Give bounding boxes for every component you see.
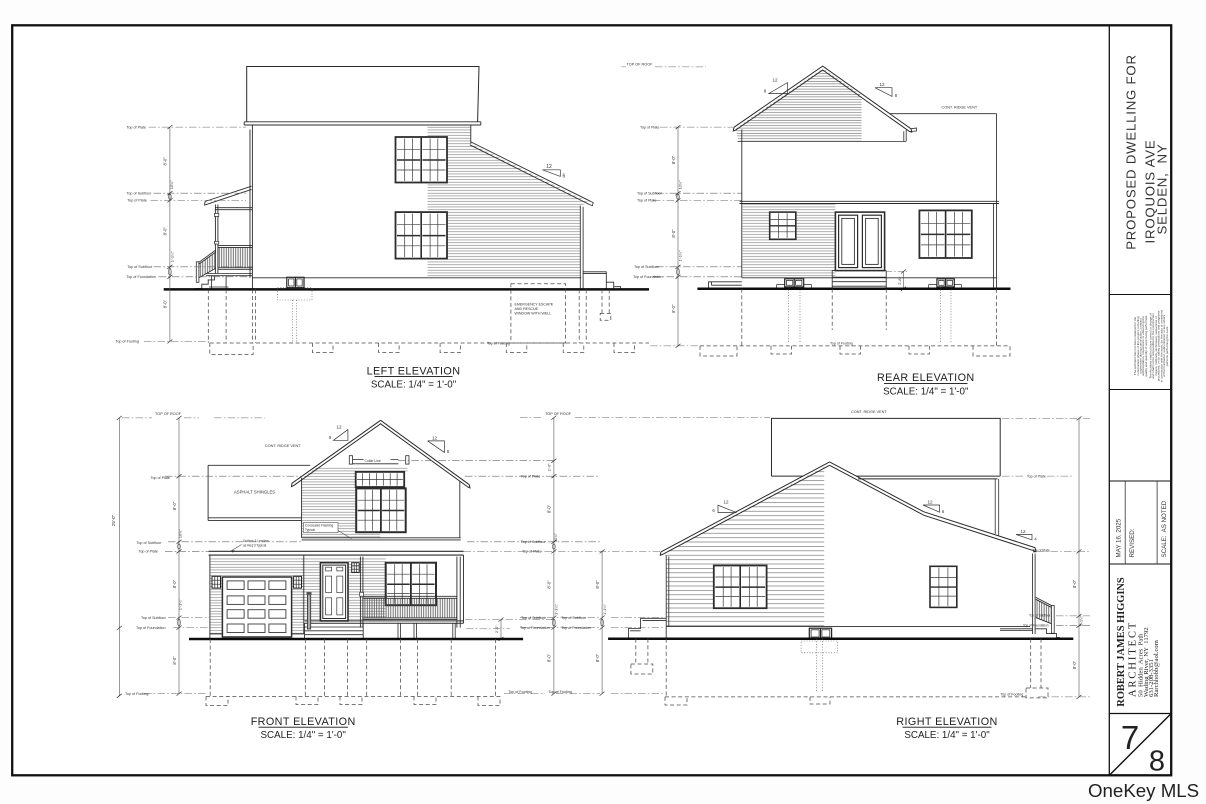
svg-text:8'-0": 8'-0" xyxy=(546,580,551,589)
svg-text:SELDEN, NY: SELDEN, NY xyxy=(1155,144,1170,235)
svg-text:REVISED:: REVISED: xyxy=(1129,528,1136,557)
svg-text:Top of Foundation: Top of Foundation xyxy=(1023,624,1049,628)
svg-text:7: 7 xyxy=(1121,719,1139,756)
svg-text:Top of Subfloor: Top of Subfloor xyxy=(634,265,660,269)
svg-text:1'-1¼": 1'-1¼" xyxy=(602,603,607,615)
svg-text:8'-0": 8'-0" xyxy=(172,656,177,665)
svg-text:8'-0": 8'-0" xyxy=(1072,579,1077,588)
svg-text:8'-0": 8'-0" xyxy=(546,653,551,662)
svg-text:8'-0": 8'-0" xyxy=(595,653,600,662)
svg-text:Top of Foundation: Top of Foundation xyxy=(136,626,166,630)
svg-text:Top of Plate: Top of Plate xyxy=(151,476,170,480)
svg-text:SCALE: AS NOTED: SCALE: AS NOTED xyxy=(1161,500,1168,557)
svg-text:8: 8 xyxy=(1149,746,1165,778)
svg-text:25'-0": 25'-0" xyxy=(111,514,116,526)
svg-text:CONT. RIDGE VENT: CONT. RIDGE VENT xyxy=(851,410,887,414)
svg-text:Top of Subfloor: Top of Subfloor xyxy=(127,265,153,269)
svg-text:Top of Footing: Top of Footing xyxy=(487,342,510,346)
svg-text:Top of Plate: Top of Plate xyxy=(640,125,659,129)
svg-text:REAR ELEVATION: REAR ELEVATION xyxy=(877,372,975,384)
svg-text:Top of Subfloor: Top of Subfloor xyxy=(141,616,167,620)
svg-text:2'-8": 2'-8" xyxy=(898,276,902,284)
svg-text:Top of Foundation: Top of Foundation xyxy=(520,626,550,630)
svg-text:SCALE: 1/4" = 1'-0": SCALE: 1/4" = 1'-0" xyxy=(883,386,969,397)
svg-text:CONT. RIDGE VENT: CONT. RIDGE VENT xyxy=(942,106,978,110)
svg-text:AND RESCUE: AND RESCUE xyxy=(515,307,539,311)
svg-text:8'-0": 8'-0" xyxy=(595,580,600,589)
svg-text:1'-1¼": 1'-1¼" xyxy=(553,603,558,615)
svg-text:Top of Plate: Top of Plate xyxy=(1032,549,1050,553)
svg-text:Top of Foundation: Top of Foundation xyxy=(561,626,591,630)
svg-text:8'-0": 8'-0" xyxy=(163,299,168,308)
svg-text:8'-0": 8'-0" xyxy=(671,155,676,164)
svg-text:8'-0": 8'-0" xyxy=(172,501,177,510)
svg-text:Top of Footing: Top of Footing xyxy=(125,692,148,696)
svg-text:SCALE: 1/4" = 1'-0": SCALE: 1/4" = 1'-0" xyxy=(904,730,990,741)
svg-text:Top of Footing: Top of Footing xyxy=(508,690,531,694)
svg-text:FRONT ELEVATION: FRONT ELEVATION xyxy=(251,716,356,728)
svg-text:Top of Plate: Top of Plate xyxy=(1027,475,1046,479)
svg-text:Typical: Typical xyxy=(305,528,315,532)
svg-text:Top of Subfloor: Top of Subfloor xyxy=(521,616,547,620)
svg-text:12: 12 xyxy=(723,500,729,505)
svg-text:Top of Plate: Top of Plate xyxy=(637,199,656,203)
svg-text:8'-0": 8'-0" xyxy=(163,227,168,236)
svg-text:SCALE: 1/4" = 1'-0": SCALE: 1/4" = 1'-0" xyxy=(261,730,347,741)
svg-text:Top of Foundation: Top of Foundation xyxy=(633,275,663,279)
svg-text:Top of Subfloor: Top of Subfloor xyxy=(561,616,587,620)
svg-text:quality and quantity of work b: quality and quantity of work being perfo… xyxy=(1144,315,1148,377)
svg-text:PROPOSED DWELLING FOR: PROPOSED DWELLING FOR xyxy=(1124,54,1139,250)
svg-text:Top of Footing: Top of Footing xyxy=(549,690,572,694)
svg-text:Top of Plate: Top of Plate xyxy=(521,474,540,478)
svg-text:8'-0": 8'-0" xyxy=(671,304,676,313)
svg-text:LEFT ELEVATION: LEFT ELEVATION xyxy=(367,365,461,377)
svg-text:2'-0": 2'-0" xyxy=(495,625,499,633)
svg-text:10¾": 10¾" xyxy=(553,533,558,543)
svg-text:Top of Subfloor: Top of Subfloor xyxy=(637,192,663,196)
svg-text:EMERGENCY ESCAPE: EMERGENCY ESCAPE xyxy=(515,303,554,307)
svg-text:10¾": 10¾" xyxy=(677,180,682,190)
svg-text:Top of Plate: Top of Plate xyxy=(127,125,146,129)
svg-text:8'-0": 8'-0" xyxy=(546,504,551,513)
svg-text:TOP OF ROOF: TOP OF ROOF xyxy=(545,412,572,416)
svg-text:TOP OF ROOF: TOP OF ROOF xyxy=(155,412,182,416)
svg-text:Collar Line: Collar Line xyxy=(365,459,381,463)
svg-text:8'-0": 8'-0" xyxy=(1072,660,1077,669)
svg-text:RIGHT ELEVATION: RIGHT ELEVATION xyxy=(896,716,997,728)
svg-text:12: 12 xyxy=(432,435,438,440)
svg-text:OneKey MLS: OneKey MLS xyxy=(1088,780,1199,801)
svg-text:10¾": 10¾" xyxy=(178,529,183,539)
svg-text:ROBERT JAMES HIGGINS: ROBERT JAMES HIGGINS xyxy=(1116,577,1127,707)
svg-text:2'-0": 2'-0" xyxy=(546,463,551,471)
svg-text:1'-1¼": 1'-1¼" xyxy=(678,250,683,262)
svg-text:Rarchhobb@aol.com: Rarchhobb@aol.com xyxy=(1153,639,1160,697)
svg-text:12: 12 xyxy=(879,82,885,87)
svg-text:10¾": 10¾" xyxy=(169,180,174,190)
svg-text:8'-0": 8'-0" xyxy=(671,229,676,238)
svg-text:1'-1¼": 1'-1¼" xyxy=(178,599,183,611)
svg-text:MAY 16, 2025: MAY 16, 2025 xyxy=(1116,518,1123,557)
svg-text:Top of Footing: Top of Footing xyxy=(1001,692,1024,696)
svg-text:as Req'd Typical: as Req'd Typical xyxy=(243,543,267,547)
svg-text:Top of Plate: Top of Plate xyxy=(139,549,158,553)
svg-text:Top of Footing: Top of Footing xyxy=(830,341,853,345)
svg-text:SCALE: 1/4" = 1'-0": SCALE: 1/4" = 1'-0" xyxy=(371,380,457,391)
svg-text:12: 12 xyxy=(772,77,778,82)
svg-text:CONT. RIDGE VENT: CONT. RIDGE VENT xyxy=(265,444,301,448)
svg-text:persons performing the work.: persons performing the work. xyxy=(1165,326,1169,366)
svg-text:Top of Plate: Top of Plate xyxy=(522,550,541,554)
svg-text:Top of Subfloor: Top of Subfloor xyxy=(127,192,153,196)
svg-text:12: 12 xyxy=(546,164,552,170)
svg-text:Top of Subfloor: Top of Subfloor xyxy=(521,540,547,544)
svg-text:1'-1¼": 1'-1¼" xyxy=(1078,615,1083,627)
svg-text:8'-0": 8'-0" xyxy=(172,579,177,588)
svg-text:12: 12 xyxy=(1020,529,1026,534)
svg-text:12: 12 xyxy=(336,425,342,430)
svg-text:Top of Footing: Top of Footing xyxy=(116,340,139,344)
svg-text:Top of Subfloor: Top of Subfloor xyxy=(1029,614,1051,618)
svg-text:TOP OF ROOF: TOP OF ROOF xyxy=(627,63,654,67)
svg-text:1'-1¼": 1'-1¼" xyxy=(170,251,175,263)
svg-text:6: 6 xyxy=(563,174,566,180)
svg-text:Top of Plate: Top of Plate xyxy=(127,199,146,203)
svg-text:12: 12 xyxy=(927,500,933,505)
svg-text:ASPHALT SHINGLES: ASPHALT SHINGLES xyxy=(234,489,275,494)
svg-text:Top of Foundation: Top of Foundation xyxy=(126,275,156,279)
svg-text:WINDOW WITH WELL: WINDOW WITH WELL xyxy=(515,312,552,316)
svg-text:8'-0": 8'-0" xyxy=(163,157,168,166)
svg-text:Top of Subfloor: Top of Subfloor xyxy=(137,541,163,545)
